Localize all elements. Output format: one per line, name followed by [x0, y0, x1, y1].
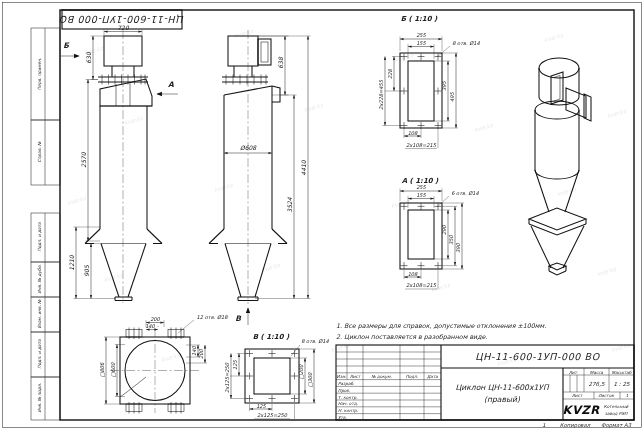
sheets-value: 1 — [626, 393, 629, 398]
stamp-podp-data-2: Подп. и дата — [37, 339, 42, 369]
row-nkontr: Н. контр. — [338, 408, 359, 413]
stamp-podp-data-1: Подп. и дата — [37, 222, 42, 252]
row-razrab: Разраб. — [338, 381, 355, 386]
fold-mark: 1 — [542, 422, 545, 428]
arrow-a-label: А — [168, 80, 174, 89]
note-1: 1. Все размеры для справок, допустимые о… — [336, 322, 546, 330]
dim-v-125-bottom: 125 — [256, 403, 266, 409]
cyclone-technical-drawing: kvzr.kz — [0, 0, 644, 430]
dim-a-350: 350 — [448, 234, 454, 244]
format-label: Формат А3 — [601, 422, 632, 429]
dim-4410: 4410 — [300, 159, 307, 175]
stamp-inv-dubl: Инв. № дубл. — [37, 264, 42, 294]
dim-b-395: 395 — [441, 80, 447, 90]
dim-v-250-bottom: 2x125=250 — [257, 412, 288, 418]
dim-b-215: 2x108=215 — [406, 142, 437, 148]
dim-a-155: 155 — [416, 192, 426, 198]
dim-638: 638 — [277, 56, 284, 69]
dim-b-495: 495 — [449, 91, 455, 101]
stamp-vzam-inv: Взам. инв. № — [37, 299, 42, 329]
dim-2570: 2570 — [80, 151, 87, 167]
company-name-line1: Котельный — [604, 404, 629, 409]
stamp-column-boxes: Перв. примен. Справ. № Подп. и дата Инв.… — [31, 28, 60, 420]
front-flange-bolts — [102, 75, 145, 85]
dim-630: 630 — [85, 51, 92, 64]
mass-value: 276,5 — [588, 381, 604, 387]
section-a-holes: 6 отв. Ø14 — [451, 190, 479, 196]
dim-a-108: 108 — [408, 271, 418, 277]
view-v-title: В ( 1:10 ) — [253, 333, 290, 341]
section-b-view: Б ( 1:10 ) 255 155 8 отв. Ø14 228 2x228=… — [378, 15, 481, 149]
arrow-v-label: В — [235, 314, 242, 323]
company-logo: KVZR — [562, 403, 600, 417]
dim-b-228: 228 — [387, 68, 393, 78]
mass-label: Масса — [590, 370, 604, 375]
lit-label: Лит. — [569, 370, 579, 375]
sheets-label: Листов — [598, 393, 614, 398]
dim-905: 905 — [83, 264, 90, 277]
dim-a-290: 290 — [441, 224, 447, 234]
stamp-inv-podl: Инв. № подл. — [37, 383, 42, 413]
dim-720: 720 — [117, 24, 130, 31]
dim-d608: Ø608 — [240, 144, 257, 151]
scale-value: 1 : 25 — [613, 381, 630, 387]
section-b-bolt-marks — [401, 54, 442, 130]
dim-plan-140-top: 140 — [145, 323, 155, 329]
dim-1210: 1210 — [68, 254, 75, 270]
dim-plan-600: □600 — [110, 362, 116, 377]
dim-b-455: 2x228=455 — [378, 79, 384, 110]
dim-v-250-left: 2x125=250 — [224, 362, 230, 393]
company-name-line2: завод РЭП — [605, 411, 628, 416]
plan-view: 200 140 12 отв. Ø18 □806 □600 140 200 — [99, 314, 229, 414]
note-2: 2. Циклон поставляется в разобранном вид… — [336, 333, 487, 341]
stamp-perv-primen: Перв. примен. — [37, 57, 42, 90]
col-izm: Изм. — [337, 374, 348, 379]
designation: ЦН-11-600-1УП-000 ВО — [475, 351, 600, 362]
title-block: Изм. Лист № докум. Подп. Дата Разраб. Пр… — [336, 345, 634, 420]
notes: 1. Все размеры для справок, допустимые о… — [336, 322, 546, 341]
row-nachotd: Нач. отд. — [338, 401, 359, 406]
dim-plan-140-right: 140 — [191, 345, 197, 355]
part-name-line1: Циклон ЦН-11-600х1УП — [455, 383, 549, 392]
side-flange-bolts — [226, 75, 266, 85]
dim-a-255: 255 — [416, 184, 426, 190]
dim-v-200: □200 — [298, 364, 304, 379]
dim-a-215: 2x108=215 — [406, 282, 437, 288]
copied-label: Копировал — [560, 422, 591, 429]
dim-b-108: 108 — [408, 130, 418, 136]
front-view: 720 630 Б А 2570 — [61, 24, 178, 304]
side-view: 638 Ø608 В 3524 4410 — [209, 30, 311, 325]
dim-a-390: 390 — [455, 242, 461, 252]
row-utv: Утв. — [338, 415, 347, 420]
stamp-sprav-no: Справ. № — [37, 141, 42, 162]
dim-v-125-left: 125 — [232, 359, 238, 369]
dim-b-255: 255 — [416, 32, 426, 38]
dim-b-155: 155 — [416, 40, 426, 46]
drawing-sheet: kvzr.kz — [0, 0, 644, 430]
isometric-view — [529, 58, 591, 275]
part-name-line2: (правый) — [484, 395, 521, 404]
col-doc: № докум. — [371, 374, 392, 379]
section-b-title: Б ( 1:10 ) — [401, 15, 438, 23]
arrow-b-label: Б — [63, 41, 70, 50]
col-list: Лист — [350, 374, 361, 379]
dim-3524: 3524 — [286, 197, 293, 212]
scale-label: Масштаб — [612, 370, 632, 375]
dim-plan-200-right: 200 — [198, 348, 204, 358]
dim-v-300: □300 — [307, 372, 313, 387]
col-sign: Подп. — [406, 374, 419, 379]
sheet-label: Лист — [572, 393, 583, 398]
col-date: Дата — [427, 374, 438, 379]
row-prov: Пров. — [338, 388, 351, 393]
plan-holes: 12 отв. Ø18 — [197, 314, 229, 320]
dim-plan-200-top: 200 — [150, 316, 160, 322]
view-v-holes: 8 отв. Ø14 — [301, 338, 329, 344]
row-tkontr: Т. контр. — [338, 395, 358, 400]
section-a-view: А ( 1:10 ) 255 155 6 отв. Ø14 290 350 39… — [400, 177, 480, 289]
section-b-holes: 8 отв. Ø14 — [452, 40, 480, 46]
view-v: В ( 1:10 ) 8 отв. Ø14 125 2x125=250 □200… — [224, 333, 330, 419]
dim-plan-806: □806 — [99, 362, 105, 377]
